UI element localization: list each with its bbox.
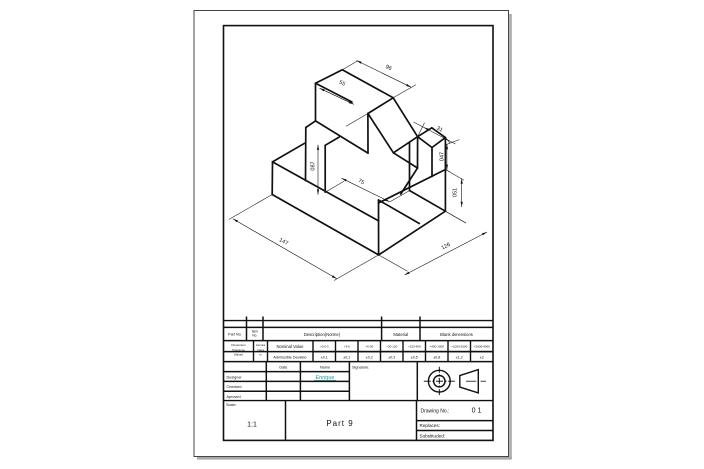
- svg-text:Date: Date: [279, 366, 287, 370]
- svg-text:Description(Norme): Description(Norme): [304, 332, 341, 337]
- svg-text:±0,5: ±0,5: [411, 355, 418, 359]
- svg-text:Part 9: Part 9: [326, 419, 353, 428]
- svg-text:No.: No.: [252, 334, 257, 338]
- svg-text:>120-400: >120-400: [408, 345, 421, 349]
- svg-text:±0,1: ±0,1: [343, 355, 350, 359]
- svg-text:0 1: 0 1: [472, 408, 482, 415]
- svg-text:1:1: 1:1: [247, 422, 257, 429]
- svg-text:Accura: Accura: [256, 343, 266, 347]
- svg-text:Drawing No.:: Drawing No.:: [421, 409, 450, 415]
- svg-text:Checked: Checked: [227, 385, 242, 389]
- svg-text:>2000-4000: >2000-4000: [474, 345, 490, 349]
- svg-text:±0,8: ±0,8: [433, 355, 440, 359]
- svg-text:087: 087: [311, 161, 317, 170]
- svg-text:Dimension: Dimension: [231, 343, 246, 347]
- svg-text:Blank dimensions: Blank dimensions: [440, 332, 473, 337]
- svg-text:Nominal Value: Nominal Value: [277, 344, 305, 349]
- svg-text:Aproved: Aproved: [227, 395, 241, 399]
- svg-text:Class: Class: [257, 348, 265, 352]
- svg-text:Designer: Designer: [227, 375, 243, 379]
- svg-text:Name: Name: [320, 366, 330, 370]
- svg-text:Part No.: Part No.: [228, 333, 242, 337]
- svg-text:±1,2: ±1,2: [456, 355, 463, 359]
- svg-text:>30-120: >30-120: [386, 345, 397, 349]
- svg-text:±2: ±2: [480, 355, 484, 359]
- svg-text:051: 051: [453, 188, 459, 197]
- svg-text:Replaces:: Replaces:: [420, 423, 440, 428]
- svg-text:Signature:: Signature:: [352, 366, 369, 370]
- svg-text:Substituded:: Substituded:: [420, 434, 446, 439]
- svg-text:(Value): (Value): [234, 352, 243, 356]
- svg-text:>0,5-3: >0,5-3: [320, 345, 329, 349]
- svg-text:>6-30: >6-30: [365, 345, 373, 349]
- svg-text:±0,1: ±0,1: [321, 355, 328, 359]
- svg-text:047: 047: [440, 152, 446, 161]
- svg-text:Tolerance: Tolerance: [232, 348, 245, 352]
- svg-text:>3-6: >3-6: [344, 345, 350, 349]
- svg-text:Admissible Deviatio: Admissible Deviatio: [273, 355, 306, 359]
- svg-text:Scale:: Scale:: [226, 403, 237, 407]
- svg-text:±0,3: ±0,3: [388, 355, 395, 359]
- svg-text:>400-1000: >400-1000: [430, 345, 445, 349]
- svg-text:±0,2: ±0,2: [366, 355, 373, 359]
- svg-text:>1000-2000: >1000-2000: [451, 345, 467, 349]
- svg-text:Material: Material: [393, 332, 408, 337]
